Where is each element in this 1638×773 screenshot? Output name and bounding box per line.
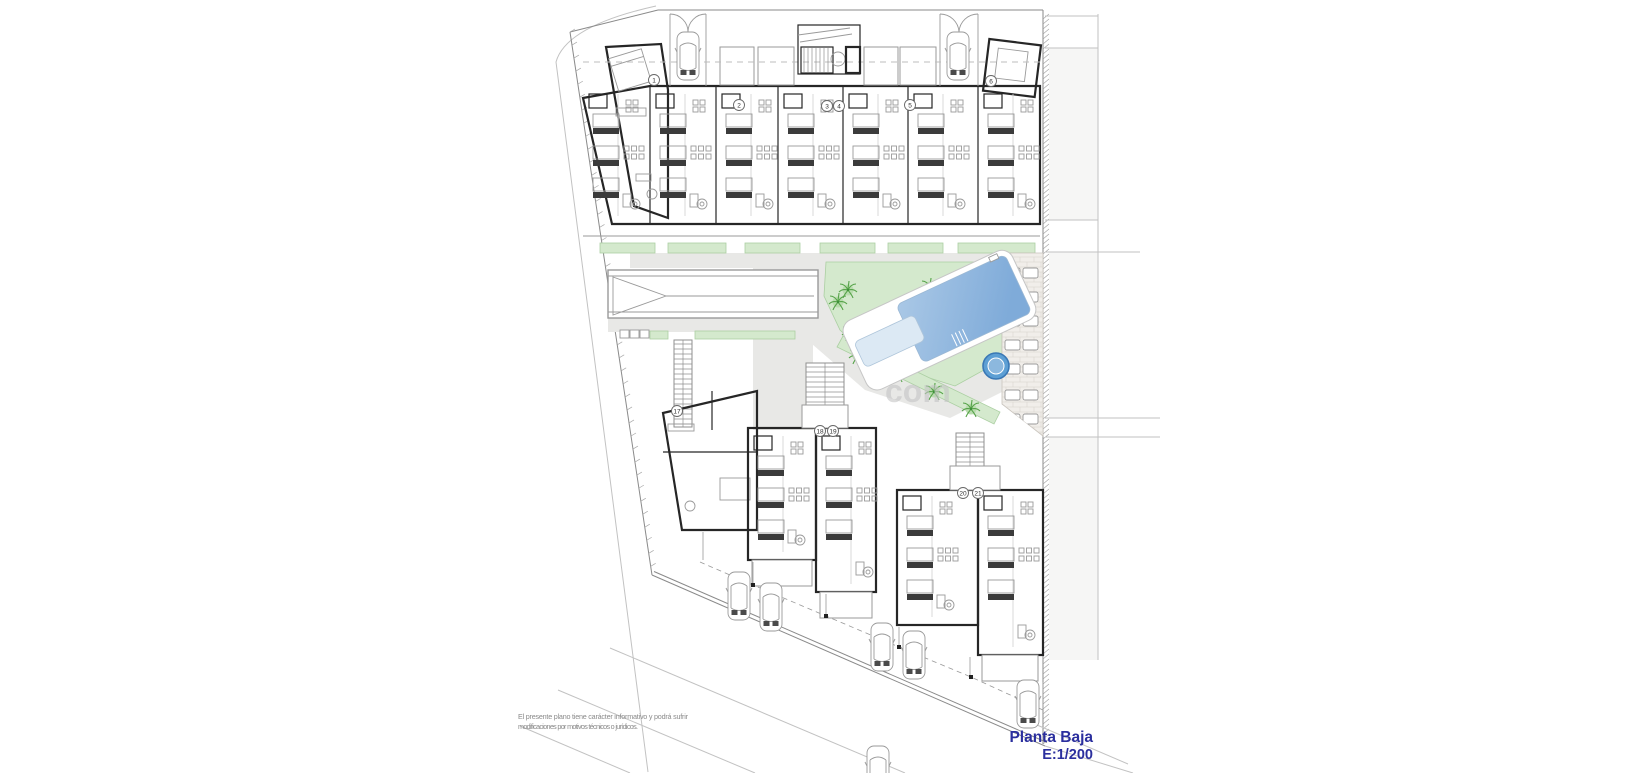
dining-chair <box>857 496 862 501</box>
hatch-tick <box>1043 199 1049 204</box>
hatch-tick <box>1043 204 1049 209</box>
terrace-chair <box>958 107 963 112</box>
dining-chair <box>797 496 802 501</box>
hatch-tick <box>1043 374 1049 379</box>
bed <box>988 146 1014 159</box>
hatch-tick <box>1043 334 1049 339</box>
terrace-chair <box>866 449 871 454</box>
hatch-tick <box>1043 54 1049 59</box>
plant <box>955 199 965 209</box>
bed-headboard <box>788 128 814 134</box>
hatch-tick <box>1043 319 1049 324</box>
hatch-tick <box>1043 114 1049 119</box>
unit-21-terrace <box>982 655 1038 681</box>
terrace-chair <box>1028 509 1033 514</box>
bed <box>918 178 944 191</box>
dining-chair <box>1034 154 1039 159</box>
hatch-tick <box>1043 674 1049 679</box>
bed <box>788 114 814 127</box>
apartment-interior <box>784 94 839 216</box>
bed-headboard <box>988 192 1014 198</box>
dining-chair <box>639 146 644 151</box>
hatch-tick <box>588 146 593 149</box>
dining-chair <box>706 146 711 151</box>
terrace-chair <box>1021 509 1026 514</box>
terrace-chair <box>766 107 771 112</box>
dining-chair <box>772 154 777 159</box>
plant <box>893 202 897 206</box>
hatch-tick <box>601 238 606 241</box>
sun-lounger <box>1023 340 1038 350</box>
bathroom <box>903 496 921 510</box>
bathroom <box>849 94 867 108</box>
hatch-tick <box>1043 124 1049 129</box>
dining-chair <box>957 154 962 159</box>
hatch-tick <box>1043 694 1049 699</box>
plant <box>890 199 900 209</box>
dining-chair <box>953 556 958 561</box>
dining-chair <box>964 154 969 159</box>
dining-chair <box>699 154 704 159</box>
bed-headboard <box>826 470 852 476</box>
bed-headboard <box>660 128 686 134</box>
bed-headboard <box>593 160 619 166</box>
plant <box>766 202 770 206</box>
sidewalk-lines-right <box>1045 14 1160 660</box>
planter-strip <box>650 331 668 339</box>
plant <box>866 570 870 574</box>
unit-badge-number: 19 <box>829 428 837 435</box>
terrace-chair <box>700 107 705 112</box>
dining-chair <box>691 154 696 159</box>
bathroom <box>822 436 840 450</box>
dining-chair <box>946 548 951 553</box>
bed-headboard <box>988 530 1014 536</box>
unit-badge: 2 <box>734 100 745 111</box>
unit-badge: 4 <box>834 101 845 112</box>
bed <box>826 456 852 469</box>
hatch-tick <box>1043 409 1049 414</box>
hatch-tick <box>633 446 638 449</box>
hatch-tick <box>625 394 630 397</box>
hatch-tick <box>1043 474 1049 479</box>
terrace-chair <box>886 100 891 105</box>
dining-chair <box>1034 556 1039 561</box>
planter-strip <box>888 243 943 253</box>
hatch-tick <box>1043 154 1049 159</box>
bed <box>660 114 686 127</box>
unit-badge-number: 18 <box>816 428 824 435</box>
bed <box>918 146 944 159</box>
dining-chair <box>699 146 704 151</box>
bed-headboard <box>853 192 879 198</box>
hatch-tick <box>1043 309 1049 314</box>
dining-chair <box>757 146 762 151</box>
hatch-tick <box>1043 264 1049 269</box>
watermark-text: com <box>885 373 951 409</box>
bed <box>988 178 1014 191</box>
plant <box>1028 633 1032 637</box>
sun-lounger <box>1005 414 1020 424</box>
bed <box>988 548 1014 561</box>
spa-jacuzzi-inner <box>988 358 1004 374</box>
terrace-chair <box>859 449 864 454</box>
hatch-tick <box>1043 24 1049 29</box>
hatch-tick <box>1043 179 1049 184</box>
planter-strip <box>668 243 726 253</box>
hatch-tick <box>1043 164 1049 169</box>
hatch-tick <box>619 355 624 358</box>
terrace-chair <box>951 107 956 112</box>
hatch-tick <box>1043 384 1049 389</box>
plant <box>1025 630 1035 640</box>
terrace-chair <box>1028 502 1033 507</box>
unit-badge: 5 <box>905 100 916 111</box>
hatch-tick <box>1043 274 1049 279</box>
terrace-chair <box>947 502 952 507</box>
plant <box>828 202 832 206</box>
hatch-tick <box>1043 379 1049 384</box>
dining-chair <box>834 146 839 151</box>
hatch-tick <box>1043 679 1049 684</box>
hatch-tick <box>651 563 656 566</box>
terrace-chair <box>958 100 963 105</box>
top-slab-outline <box>583 86 1040 224</box>
unit-badge-number: 6 <box>989 78 993 85</box>
bathroom <box>784 94 802 108</box>
terrace-chair <box>626 100 631 105</box>
dining-chair <box>706 154 711 159</box>
hatch-tick <box>1043 484 1049 489</box>
plant <box>795 535 805 545</box>
dining-chair <box>1027 154 1032 159</box>
hatch-tick <box>621 368 626 371</box>
car <box>758 583 784 631</box>
hatch-tick <box>647 537 652 540</box>
dining-chair <box>789 488 794 493</box>
plant <box>958 202 962 206</box>
apartment-interior <box>914 94 969 216</box>
dining-chair <box>1019 548 1024 553</box>
bed-headboard <box>593 192 619 198</box>
dining-chair <box>938 556 943 561</box>
boundary-marker <box>969 675 973 679</box>
planter-strip <box>600 243 655 253</box>
dining-chair <box>639 154 644 159</box>
hatch-tick <box>1043 229 1049 234</box>
hatch-tick <box>1043 214 1049 219</box>
architectural-floor-plan-page: 1234561718192021 com El presente plano t… <box>0 0 1638 773</box>
dining-chair <box>834 154 839 159</box>
unit-badge: 1 <box>649 75 660 86</box>
terrace-chair <box>886 107 891 112</box>
hatch-tick <box>1043 89 1049 94</box>
bed <box>826 488 852 501</box>
bed <box>907 516 933 529</box>
bed <box>758 520 784 533</box>
hatch-tick <box>1043 709 1049 714</box>
hatch-tick <box>1043 404 1049 409</box>
hatch-tick <box>1043 339 1049 344</box>
hatch-tick <box>1043 429 1049 434</box>
unit-badge-number: 4 <box>837 103 841 110</box>
car <box>901 631 927 679</box>
hatch-tick <box>1043 464 1049 469</box>
bed-headboard <box>918 192 944 198</box>
apartment-interior <box>849 94 904 216</box>
unit-badge: 21 <box>973 488 984 499</box>
bed <box>593 114 619 127</box>
terrace-chair <box>1021 100 1026 105</box>
unit-badge-number: 21 <box>974 490 982 497</box>
hatch-tick <box>1043 394 1049 399</box>
hatch-tick <box>1043 84 1049 89</box>
plant <box>763 199 773 209</box>
apartment-interior <box>822 436 877 584</box>
bed-headboard <box>726 160 752 166</box>
hatch-tick <box>1043 289 1049 294</box>
bed <box>988 580 1014 593</box>
sun-lounger <box>1023 390 1038 400</box>
hatch-tick <box>1043 424 1049 429</box>
hatch-tick <box>574 55 579 58</box>
dining-chair <box>819 146 824 151</box>
plant <box>947 603 951 607</box>
entry-landing <box>950 466 1000 490</box>
hatch-tick <box>635 459 640 462</box>
hatch-tick <box>1043 684 1049 689</box>
unit-21-outline <box>978 490 1043 655</box>
hatch-tick <box>1043 299 1049 304</box>
hatch-tick <box>649 550 654 553</box>
bed <box>758 488 784 501</box>
sun-lounger <box>1005 340 1020 350</box>
unit-badge-number: 1 <box>652 77 656 84</box>
sun-lounger <box>1023 364 1038 374</box>
hatch-tick <box>641 498 646 501</box>
bed <box>826 520 852 533</box>
terrace-chair <box>947 509 952 514</box>
hatch-tick <box>1043 669 1049 674</box>
dining-chair <box>827 154 832 159</box>
dining-chair <box>1027 146 1032 151</box>
hatch-tick <box>1043 99 1049 104</box>
bathroom <box>984 496 1002 510</box>
bed-headboard <box>853 128 879 134</box>
hatch-tick <box>1043 189 1049 194</box>
terrace-chair <box>1021 107 1026 112</box>
apartment-interior <box>722 94 777 216</box>
sun-lounger <box>1023 268 1038 278</box>
street-kerb-left <box>556 6 656 772</box>
hatch-tick <box>627 407 632 410</box>
garage-door-arcs <box>670 14 706 32</box>
hatch-tick <box>596 198 601 201</box>
bed <box>726 146 752 159</box>
terrace-chair <box>1028 107 1033 112</box>
hatch-tick <box>617 342 622 345</box>
disclaimer-line-1: El presente plano tiene carácter informa… <box>518 712 689 721</box>
hatch-tick <box>576 68 581 71</box>
hatch-tick <box>1043 714 1049 719</box>
hatch-tick <box>1043 704 1049 709</box>
hatch-tick <box>1043 184 1049 189</box>
terrace-chair <box>893 107 898 112</box>
hatch-tick <box>1043 259 1049 264</box>
hatch-tick <box>645 524 650 527</box>
hatch-tick <box>1043 159 1049 164</box>
bed-headboard <box>758 470 784 476</box>
dining-chair <box>1034 146 1039 151</box>
bathroom <box>914 94 932 108</box>
terrace-chair <box>766 100 771 105</box>
dining-chair <box>884 154 889 159</box>
terrace-chair <box>866 442 871 447</box>
bed-headboard <box>826 534 852 540</box>
bed <box>853 178 879 191</box>
bed-headboard <box>726 128 752 134</box>
terrace-chair <box>1021 502 1026 507</box>
bed <box>758 456 784 469</box>
hatch-tick <box>1043 699 1049 704</box>
hatch-tick <box>1043 689 1049 694</box>
hatch-tick <box>1043 244 1049 249</box>
bed-headboard <box>918 160 944 166</box>
bed-headboard <box>758 502 784 508</box>
hatch-tick <box>1043 139 1049 144</box>
dining-chair <box>865 496 870 501</box>
hatch-tick <box>1043 134 1049 139</box>
bed-headboard <box>788 160 814 166</box>
plan-scale: E:1/200 <box>1042 747 1093 763</box>
parking-ramp <box>608 270 818 318</box>
hatch-tick <box>1043 719 1049 724</box>
car <box>865 746 891 773</box>
hatch-tick <box>1043 64 1049 69</box>
hatch-tick <box>639 485 644 488</box>
apartment-interior <box>984 496 1039 647</box>
bed <box>853 146 879 159</box>
dining-chair <box>865 488 870 493</box>
terrace-chair <box>759 107 764 112</box>
dining-chair <box>789 496 794 501</box>
plant <box>798 538 802 542</box>
hatch-tick <box>637 472 642 475</box>
apartment-interiors <box>589 94 1039 216</box>
hatch-tick <box>598 211 603 214</box>
hatch-tick <box>1043 269 1049 274</box>
apartment-interior <box>903 496 958 617</box>
bed-headboard <box>726 192 752 198</box>
terrace-chair <box>693 107 698 112</box>
bed <box>788 178 814 191</box>
bed-headboard <box>826 502 852 508</box>
hatch-tick <box>1043 194 1049 199</box>
dining-chair <box>1027 548 1032 553</box>
dining-chair <box>946 556 951 561</box>
dining-chair <box>892 154 897 159</box>
dining-chair <box>804 488 809 493</box>
terrace-chair <box>798 442 803 447</box>
hatch-tick <box>1043 659 1049 664</box>
hatch-tick <box>1043 144 1049 149</box>
planter-strip <box>695 331 795 339</box>
hatch-tick <box>1043 664 1049 669</box>
bed-headboard <box>918 128 944 134</box>
terrace-chair <box>791 449 796 454</box>
bed <box>726 114 752 127</box>
hatch-tick <box>1043 94 1049 99</box>
floor-plan-drawing: 1234561718192021 com El presente plano t… <box>0 0 1638 773</box>
dining-chair <box>804 496 809 501</box>
bed <box>988 516 1014 529</box>
bed-headboard <box>660 160 686 166</box>
hatch-tick <box>586 133 591 136</box>
plant <box>825 199 835 209</box>
hatch-tick <box>1043 19 1049 24</box>
dining-chair <box>691 146 696 151</box>
plant <box>697 199 707 209</box>
hatch-tick <box>1043 369 1049 374</box>
hatch-tick <box>1043 109 1049 114</box>
unit-badge-number: 2 <box>737 102 741 109</box>
disclaimer-line-2: modificaciones por motivos técnicos o ju… <box>518 722 638 731</box>
dining-chair <box>899 146 904 151</box>
unit-badge: 17 <box>672 406 683 417</box>
hatch-tick <box>1043 149 1049 154</box>
unit-badge-number: 3 <box>825 103 829 110</box>
dining-chair <box>964 146 969 151</box>
dining-chair <box>632 154 637 159</box>
plant <box>863 567 873 577</box>
dining-chair <box>953 548 958 553</box>
entry-landing <box>802 405 848 428</box>
terrace-chair <box>693 100 698 105</box>
hatch-tick <box>1043 329 1049 334</box>
boundary-marker <box>824 614 828 618</box>
hatch-tick <box>578 81 583 84</box>
hatch-tick <box>1043 74 1049 79</box>
dining-chair <box>797 488 802 493</box>
hatch-tick <box>1043 439 1049 444</box>
dining-chair <box>1027 556 1032 561</box>
car <box>726 572 752 620</box>
sun-lounger <box>1005 390 1020 400</box>
bed <box>660 178 686 191</box>
bathroom <box>656 94 674 108</box>
bed <box>907 548 933 561</box>
hatch-tick <box>1043 469 1049 474</box>
unit-badge: 3 <box>822 101 833 112</box>
bed <box>907 580 933 593</box>
boundary-marker <box>897 645 901 649</box>
bed-headboard <box>907 530 933 536</box>
hatch-tick <box>1043 449 1049 454</box>
hatch-tick <box>1043 79 1049 84</box>
end-unit-right <box>983 39 1041 97</box>
apartment-interior <box>984 94 1039 216</box>
hatch-tick <box>1043 344 1049 349</box>
hatch-tick <box>1043 479 1049 484</box>
car <box>945 32 971 80</box>
dining-chair <box>819 154 824 159</box>
lift-shaft <box>846 47 860 73</box>
front-yard-divisions <box>700 532 1043 710</box>
terrace-chair <box>940 502 945 507</box>
planter-strip <box>745 243 800 253</box>
hatch-tick <box>1043 454 1049 459</box>
dining-chair <box>884 146 889 151</box>
